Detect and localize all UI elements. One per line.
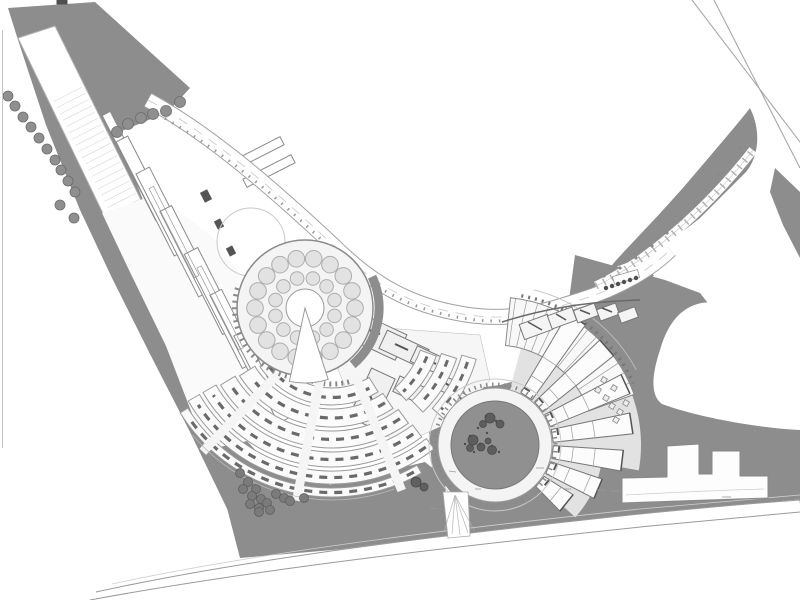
site-entry-tab (57, 0, 68, 5)
plaza-lawn (451, 401, 539, 489)
site-plan-page (0, 0, 800, 600)
site-plan-drawing (0, 0, 800, 600)
landform-right-sliver (770, 168, 800, 258)
landform-northeast-teardrop (608, 108, 757, 270)
